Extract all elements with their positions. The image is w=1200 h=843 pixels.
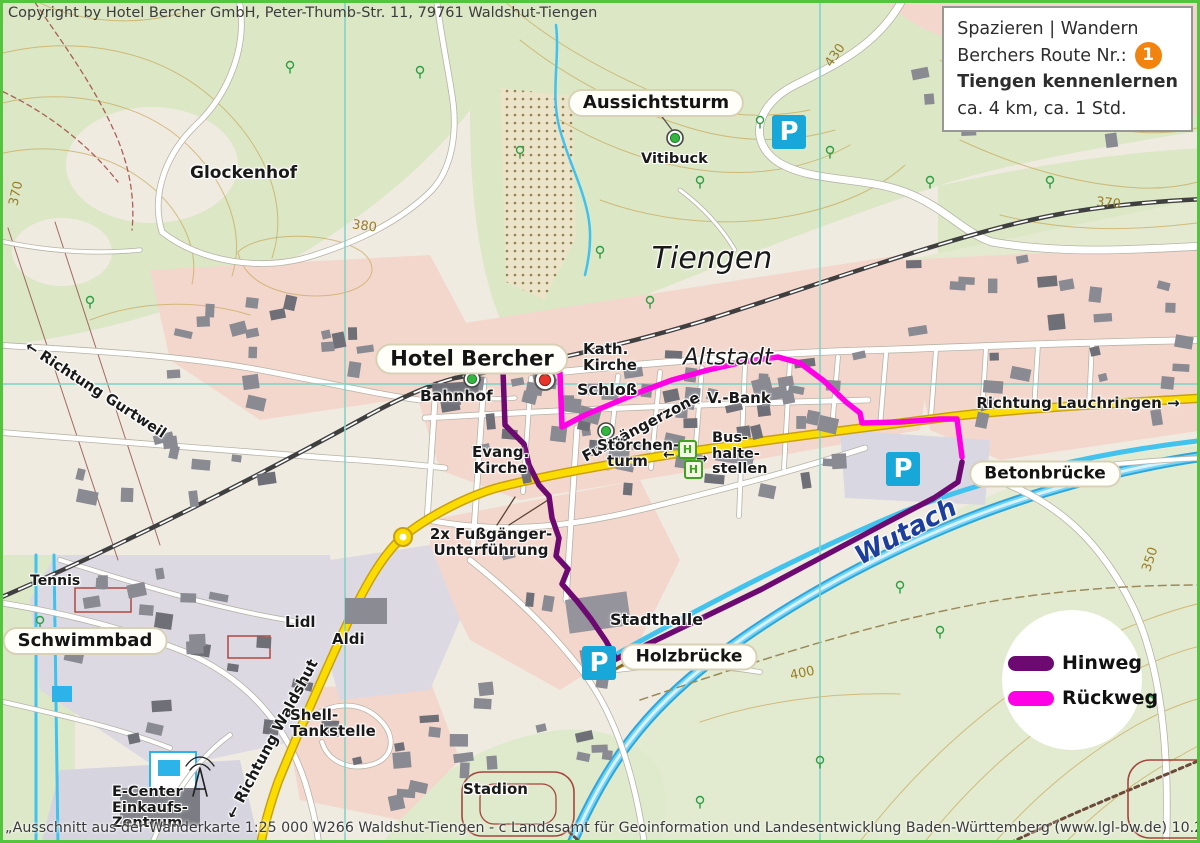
infobox-line-route: Berchers Route Nr.: bbox=[957, 43, 1126, 69]
copyright-text: Copyright by Hotel Bercher GmbH, Peter-T… bbox=[8, 5, 597, 21]
infobox-route-title: Tiengen kennenlernen bbox=[957, 69, 1178, 95]
place-label-hotel-bercher: Hotel Bercher bbox=[375, 344, 568, 375]
place-label-richtung-lauchringen: Richtung Lauchringen → bbox=[976, 395, 1179, 411]
route-legend: Hinweg Rückweg bbox=[1002, 610, 1142, 750]
place-label-schloss: Schloß bbox=[577, 381, 637, 398]
infobox-line-distance: ca. 4 km, ca. 1 Std. bbox=[957, 96, 1178, 122]
place-label-glockenhof: Glockenhof bbox=[190, 164, 297, 182]
place-label-tennis: Tennis bbox=[30, 574, 80, 589]
place-label-bushaltestellen-2: halte- bbox=[712, 447, 768, 463]
attribution-text: „Ausschnitt aus der Wanderkarte 1:25 000… bbox=[5, 820, 1200, 836]
place-label-kath-kirche-1: Kath. bbox=[583, 341, 637, 357]
parking-icon: P bbox=[886, 452, 920, 486]
place-label-aldi: Aldi bbox=[332, 631, 365, 647]
place-label-bahnhof: Bahnhof bbox=[420, 388, 493, 405]
place-label-evang-kirche-1: Evang. bbox=[472, 444, 529, 460]
place-label-stadion: Stadion bbox=[463, 781, 528, 797]
place-label-tiengen: Tiengen bbox=[652, 243, 773, 275]
parking-icon: P bbox=[582, 646, 616, 680]
contour-label-370-ne: 370 bbox=[1095, 195, 1121, 213]
place-label-vitibuck: Vitibuck bbox=[641, 152, 708, 168]
topographic-map: Copyright by Hotel Bercher GmbH, Peter-T… bbox=[0, 0, 1200, 843]
infobox-line-activity: Spazieren | Wandern bbox=[957, 16, 1178, 42]
place-label-v-bank: V.-Bank bbox=[707, 390, 771, 406]
hinweg-color-swatch bbox=[1008, 656, 1054, 671]
place-label-kath-kirche-2: Kirche bbox=[583, 357, 637, 373]
place-label-unterfuehrung-2: Unterführung bbox=[430, 542, 552, 558]
legend-hinweg-label: Hinweg bbox=[1062, 652, 1142, 674]
bus-arrow-left: ← bbox=[663, 448, 675, 463]
route-infobox: Spazieren | Wandern Berchers Route Nr.: … bbox=[942, 6, 1193, 132]
place-label-ecenter-2: Einkaufs- bbox=[112, 801, 188, 817]
place-label-unterfuehrung-1: 2x Fußgänger- bbox=[430, 526, 552, 542]
place-label-shell-1: Shell- bbox=[290, 707, 376, 723]
legend-rueckweg-label: Rückweg bbox=[1062, 687, 1158, 709]
bus-stop-icon: H bbox=[684, 460, 703, 479]
place-label-shell-2: Tankstelle bbox=[290, 723, 376, 739]
place-label-stadthalle: Stadthalle bbox=[610, 611, 703, 628]
place-label-bushaltestellen-1: Bus- bbox=[712, 431, 768, 447]
place-label-ecenter-1: E-Center bbox=[112, 785, 188, 801]
parking-icon: P bbox=[772, 115, 806, 149]
place-label-aussichtsturm: Aussichtsturm bbox=[568, 89, 744, 117]
bus-stop-icon: H bbox=[678, 440, 697, 459]
place-label-evang-kirche-2: Kirche bbox=[472, 460, 529, 476]
place-label-lidl: Lidl bbox=[285, 614, 316, 630]
place-label-holzbruecke: Holzbrücke bbox=[621, 644, 758, 671]
place-label-betonbruecke: Betonbrücke bbox=[969, 461, 1121, 488]
place-label-bushaltestellen-3: stellen bbox=[712, 462, 768, 478]
place-label-altstadt: Altstadt bbox=[683, 346, 773, 371]
place-label-schwimmbad: Schwimmbad bbox=[3, 627, 168, 655]
rueckweg-color-swatch bbox=[1008, 691, 1054, 706]
route-number-badge: 1 bbox=[1135, 42, 1162, 69]
